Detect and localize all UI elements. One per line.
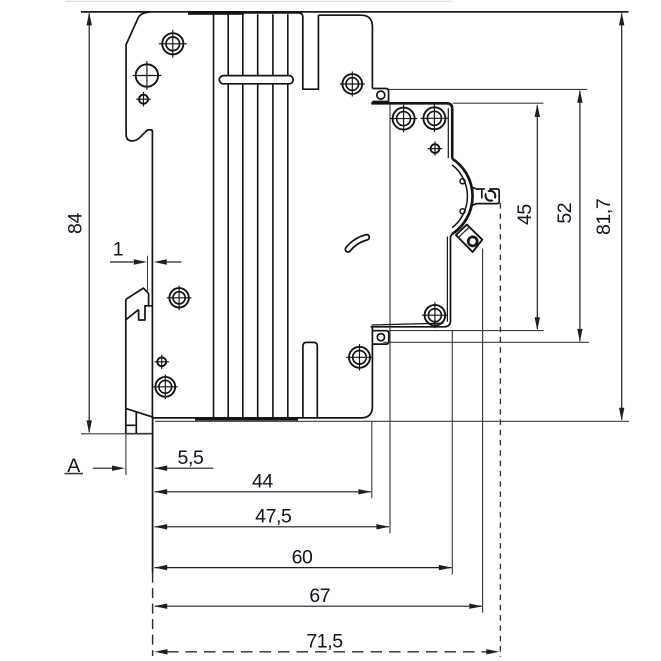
svg-text:81,7: 81,7 bbox=[593, 199, 615, 235]
svg-text:60: 60 bbox=[292, 546, 313, 568]
svg-text:67: 67 bbox=[309, 585, 330, 607]
svg-text:84: 84 bbox=[64, 213, 86, 234]
svg-text:1: 1 bbox=[113, 239, 123, 261]
svg-text:45: 45 bbox=[514, 204, 536, 225]
svg-text:71,5: 71,5 bbox=[306, 631, 343, 653]
svg-text:52: 52 bbox=[554, 203, 576, 224]
svg-text:5,5: 5,5 bbox=[178, 447, 204, 469]
svg-text:47,5: 47,5 bbox=[255, 506, 292, 528]
svg-text:44: 44 bbox=[252, 471, 273, 493]
